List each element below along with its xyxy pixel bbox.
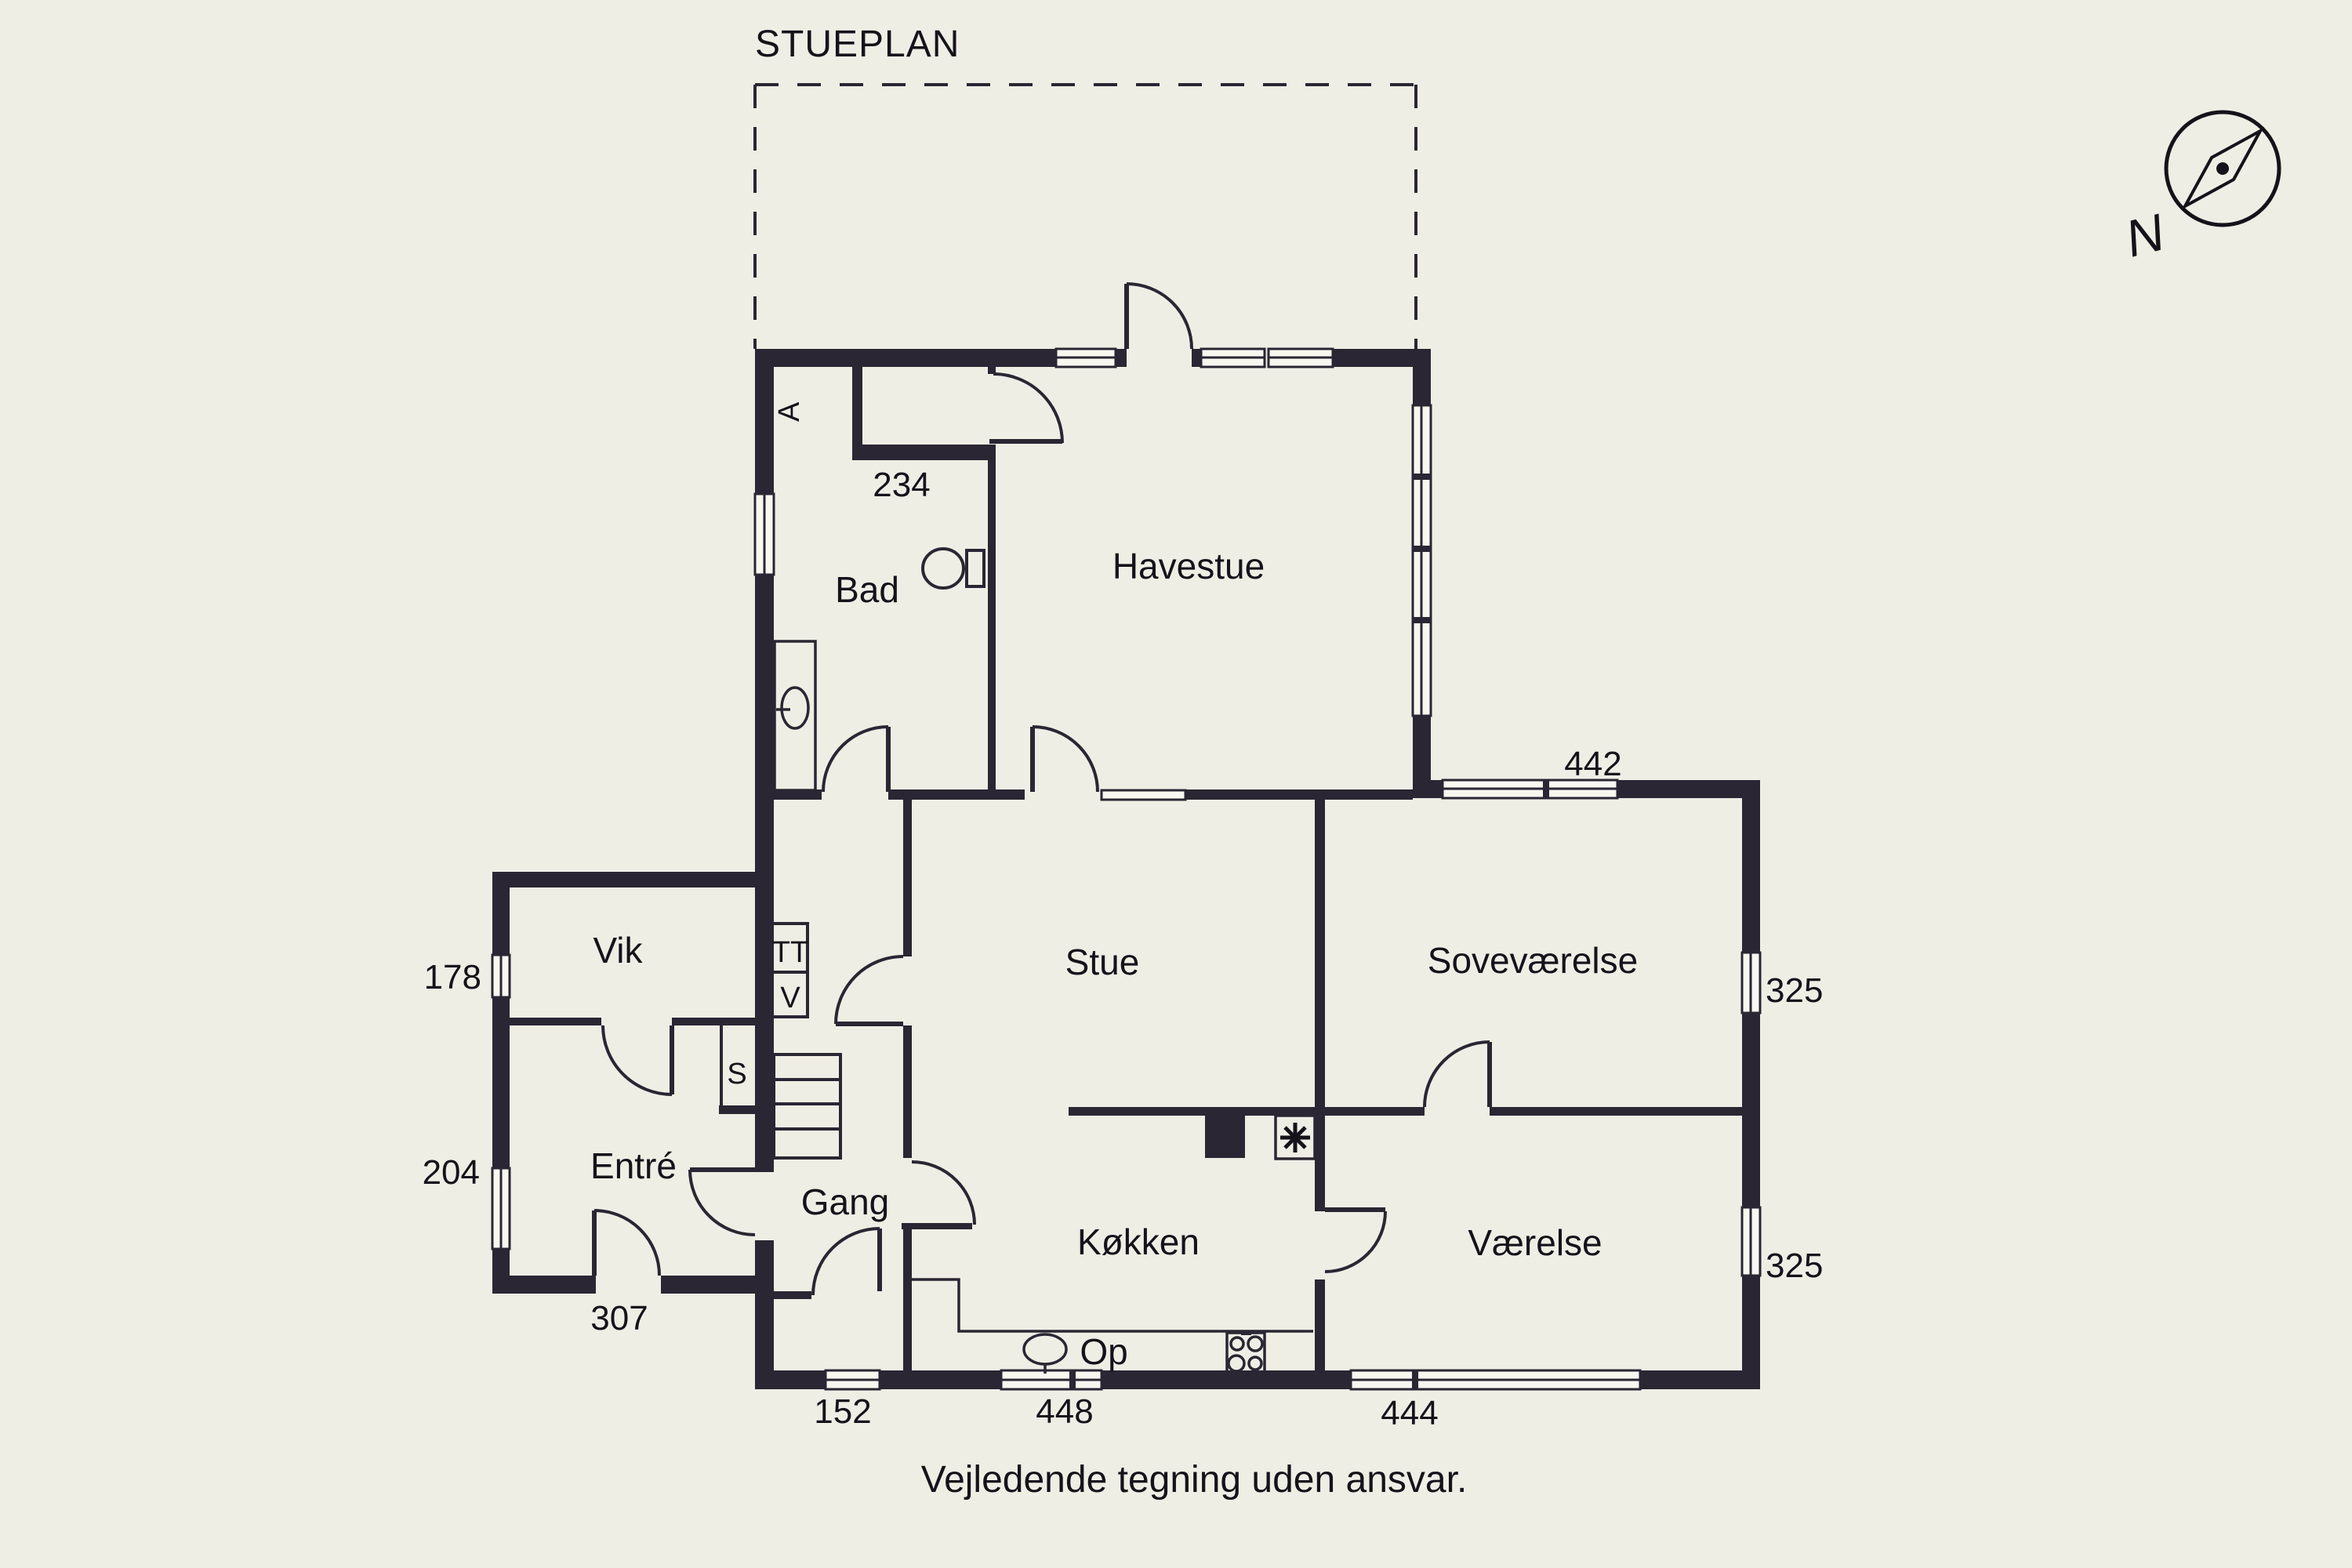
door-koekken-vaerelse — [1325, 1210, 1385, 1272]
attic-hatch-icon: A — [773, 401, 806, 422]
interior-walls — [510, 367, 1742, 1370]
room-label-havestue: Havestue — [1112, 546, 1265, 586]
door-gang-koekken — [912, 1162, 975, 1225]
compass-north-label: N — [2120, 202, 2170, 267]
window-204 — [492, 1168, 510, 1249]
window-178 — [492, 955, 510, 997]
room-label-bad: Bad — [835, 569, 899, 610]
bath-sink-icon — [775, 641, 815, 790]
stove-icon — [1227, 1330, 1265, 1372]
window-448 — [1001, 1370, 1102, 1389]
room-label-vaerelse: Værelse — [1468, 1222, 1602, 1263]
fireplace — [1205, 1116, 1245, 1158]
closet-label-s: S — [727, 1058, 746, 1091]
floor-plan: STUEPLAN — [0, 0, 2352, 1568]
door-front-entre — [594, 1210, 659, 1276]
window-top-left — [1056, 349, 1116, 367]
wood-stove-icon — [1276, 1116, 1315, 1159]
dashed-outline — [755, 85, 1416, 349]
window-152 — [826, 1370, 880, 1389]
kitchen-counter — [912, 1279, 1313, 1331]
door-stue-havestue — [1033, 727, 1098, 792]
kitchen-sink-icon — [1024, 1334, 1066, 1374]
window-havestue-right — [1413, 405, 1431, 716]
dim-234: 234 — [873, 466, 930, 504]
dim-325-bottom: 325 — [1766, 1247, 1823, 1285]
dim-178: 178 — [424, 958, 481, 996]
window-444 — [1351, 1370, 1640, 1389]
door-havestue-outside — [1127, 284, 1192, 349]
door-vik-entre — [603, 1025, 672, 1094]
room-label-vik: Vik — [593, 930, 643, 971]
dim-152: 152 — [814, 1392, 871, 1431]
door-havestue-closet — [989, 374, 1062, 443]
door-gang-stue — [836, 956, 903, 1024]
low-partition — [1102, 790, 1185, 800]
dim-444: 444 — [1381, 1394, 1438, 1432]
door-gang-bad — [823, 727, 888, 792]
dim-307: 307 — [590, 1299, 648, 1338]
compass-icon: N — [2120, 112, 2279, 268]
room-label-gang: Gang — [801, 1181, 890, 1222]
stairs-icon — [774, 1054, 840, 1158]
window-top-mid2 — [1269, 349, 1333, 367]
window-bad-left — [755, 494, 774, 575]
room-label-koekken: Køkken — [1077, 1221, 1200, 1262]
dim-448: 448 — [1036, 1392, 1093, 1431]
room-label-sovevaerelse: Soveværelse — [1428, 940, 1638, 981]
closet-label-v: V — [780, 982, 800, 1014]
room-labels: Bad Havestue Stue Soveværelse Vik Entré … — [590, 546, 1638, 1372]
label-op: Op — [1080, 1331, 1127, 1372]
window-325-top — [1742, 953, 1760, 1013]
window-top-mid1 — [1201, 349, 1265, 367]
dim-442: 442 — [1564, 745, 1621, 783]
disclaimer-text: Vejledende tegning uden ansvar. — [921, 1459, 1468, 1501]
door-entre-gang — [690, 1170, 755, 1235]
plan-title: STUEPLAN — [755, 24, 960, 65]
room-label-stue: Stue — [1065, 942, 1140, 982]
window-325-bottom — [1742, 1207, 1760, 1276]
dim-325-top: 325 — [1766, 971, 1823, 1010]
door-sovevaerelse — [1425, 1042, 1490, 1107]
door-vestibule-gang — [813, 1229, 880, 1295]
dim-204: 204 — [423, 1153, 480, 1192]
toilet-icon — [923, 549, 984, 588]
closet-label-tt: TT — [772, 936, 808, 969]
room-label-entre: Entré — [590, 1145, 677, 1186]
